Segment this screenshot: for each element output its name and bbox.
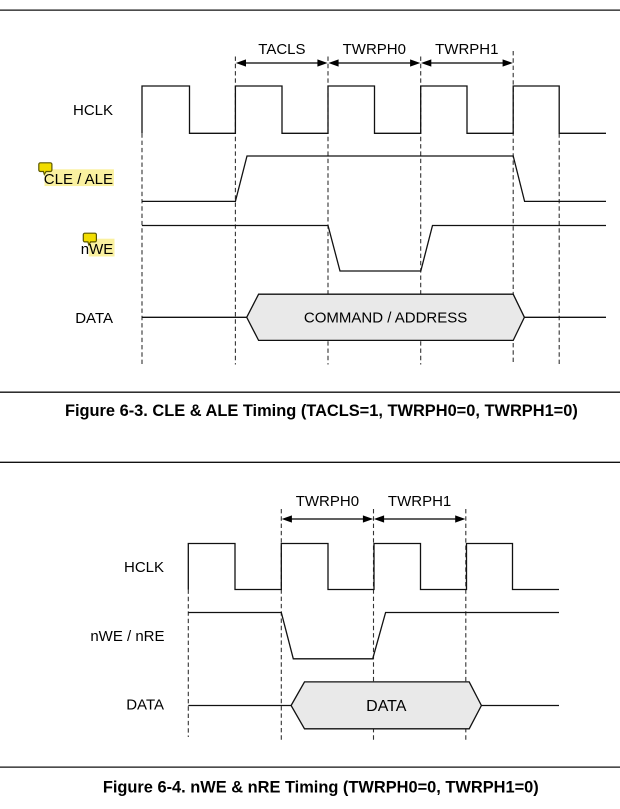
svg-text:nWE / nRE: nWE / nRE [90,628,164,645]
svg-text:DATA: DATA [75,310,113,327]
svg-text:TWRPH0: TWRPH0 [343,41,406,58]
svg-text:TWRPH1: TWRPH1 [388,493,451,510]
svg-text:nWE: nWE [81,241,114,258]
svg-text:TWRPH1: TWRPH1 [435,41,498,58]
svg-text:DATA: DATA [366,698,407,715]
svg-text:CLE / ALE: CLE / ALE [44,171,113,188]
svg-text:TWRPH0: TWRPH0 [296,493,359,510]
svg-text:HCLK: HCLK [124,559,164,576]
svg-text:TACLS: TACLS [258,41,305,58]
svg-text:HCLK: HCLK [73,102,113,119]
svg-text:COMMAND / ADDRESS: COMMAND / ADDRESS [304,310,467,327]
svg-text:Figure 6-4. nWE & nRE Timing (: Figure 6-4. nWE & nRE Timing (TWRPH0=0, … [103,779,539,797]
svg-text:Figure 6-3. CLE & ALE Timing (: Figure 6-3. CLE & ALE Timing (TACLS=1, T… [65,402,578,420]
svg-text:DATA: DATA [126,696,164,713]
